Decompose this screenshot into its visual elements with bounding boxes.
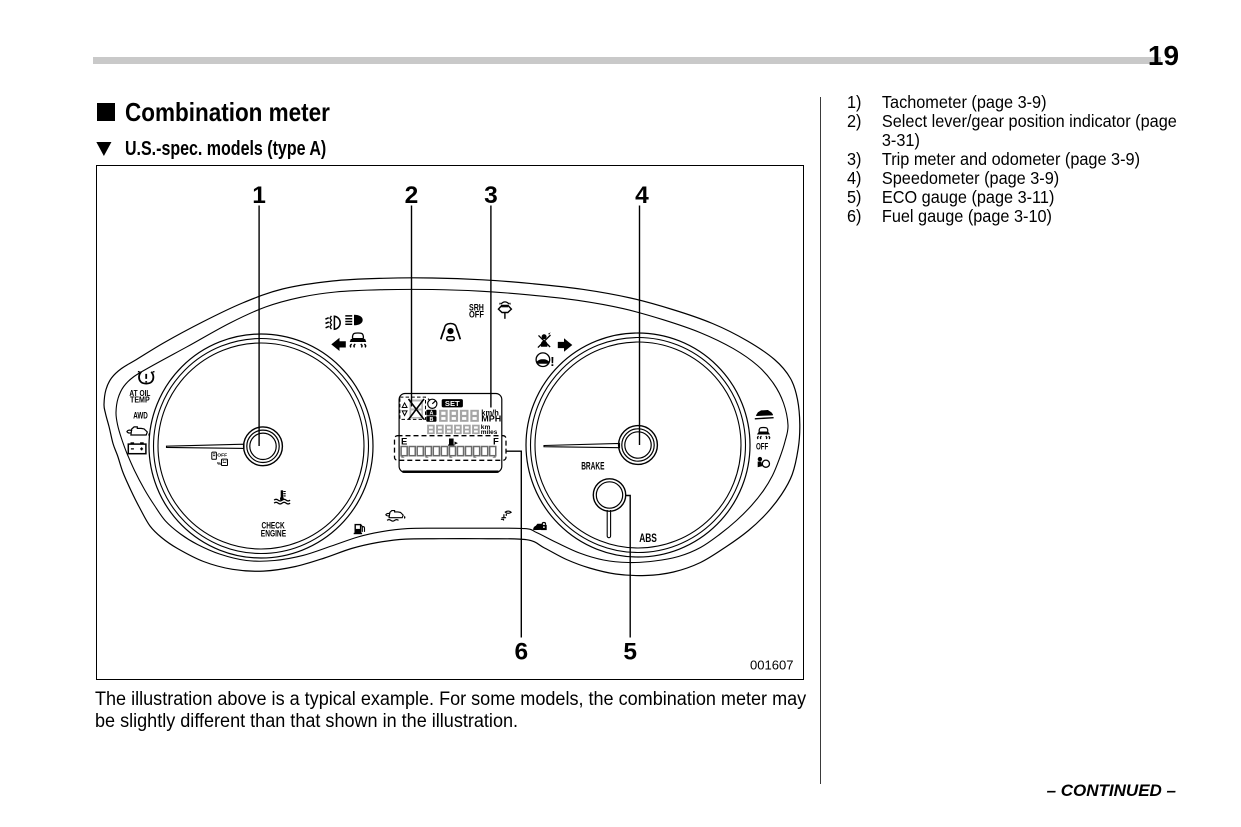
svg-text:1: 1 xyxy=(252,181,266,208)
svg-text:ABS: ABS xyxy=(639,531,657,545)
svg-text:2: 2 xyxy=(404,181,418,208)
svg-text:MPH: MPH xyxy=(481,414,501,423)
svg-text:%: % xyxy=(216,460,221,466)
svg-text:OFF: OFF xyxy=(217,452,227,458)
svg-text:5: 5 xyxy=(623,638,637,665)
svg-text:A: A xyxy=(429,410,433,416)
svg-text:OFF: OFF xyxy=(469,309,484,319)
svg-text:SET: SET xyxy=(444,398,459,407)
svg-text:B: B xyxy=(429,416,433,422)
svg-text:6: 6 xyxy=(514,638,528,665)
svg-text:001607: 001607 xyxy=(750,657,794,672)
svg-text:TEMP: TEMP xyxy=(130,394,150,404)
svg-text:AWD: AWD xyxy=(133,410,148,420)
svg-text:!: ! xyxy=(550,354,554,369)
svg-text:BRAKE: BRAKE xyxy=(581,460,604,472)
svg-text:4: 4 xyxy=(635,181,649,208)
svg-text:ENGINE: ENGINE xyxy=(260,528,285,538)
svg-text:OFF: OFF xyxy=(756,440,768,451)
svg-text:3: 3 xyxy=(484,181,498,208)
